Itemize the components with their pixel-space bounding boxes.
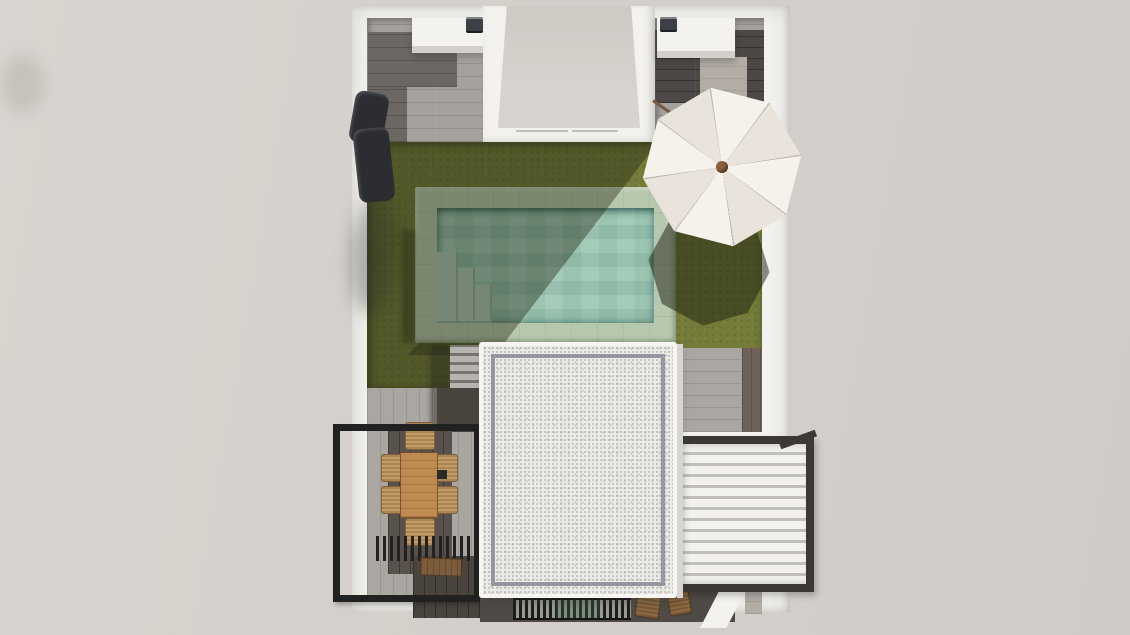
dining-pergola-frame <box>333 424 481 602</box>
entry-patio-walls <box>483 6 655 146</box>
barbecue-right <box>660 17 677 32</box>
grate-tint <box>556 600 600 618</box>
dark-path-right <box>742 348 762 432</box>
roof-east-face <box>677 344 683 598</box>
roof-border-band <box>491 354 665 586</box>
sun-lounger <box>352 126 396 203</box>
entry-patio-floor <box>495 6 643 128</box>
background-smudge <box>2 55 44 113</box>
louvered-pergola <box>668 436 814 592</box>
flat-roof <box>479 342 677 598</box>
garden-steps <box>450 345 482 389</box>
door-track <box>572 130 618 132</box>
render-canvas <box>0 0 1130 635</box>
door-track <box>516 130 568 132</box>
parasol-hub <box>716 161 728 173</box>
barbecue-left <box>466 17 483 33</box>
